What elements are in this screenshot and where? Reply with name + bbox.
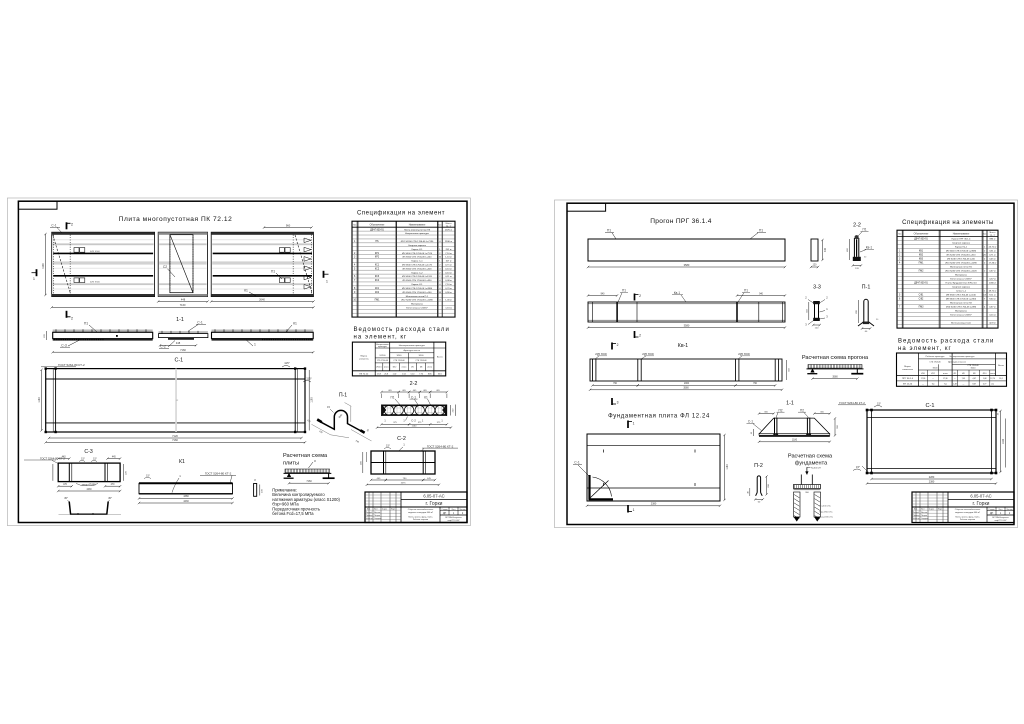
svg-text:СТБ 1704-06: СТБ 1704-06 bbox=[929, 361, 940, 363]
svg-text:ПМ1: ПМ1 bbox=[375, 300, 381, 302]
svg-text:Ø8 S500 СТБ 1704-06 L=2300: Ø8 S500 СТБ 1704-06 L=2300 bbox=[946, 299, 977, 301]
svg-text:Ø10 S240 СТБ 1704-06 L=980: Ø10 S240 СТБ 1704-06 L=980 bbox=[946, 307, 977, 309]
svg-text:1180: 1180 bbox=[1002, 438, 1005, 444]
svg-text:Ø6: Ø6 bbox=[420, 367, 423, 369]
svg-text:Стадия: Стадия bbox=[988, 509, 994, 511]
svg-text:7,10 кг: 7,10 кг bbox=[445, 253, 452, 255]
svg-text:8,67: 8,67 bbox=[972, 384, 976, 386]
svg-text:0,67 м: 0,67 м bbox=[989, 279, 996, 281]
svg-text:2: 2 bbox=[617, 343, 619, 347]
svg-text:бетона Fcd=17,5 МПа: бетона Fcd=17,5 МПа bbox=[272, 511, 314, 516]
svg-text:252 кг: 252 кг bbox=[446, 249, 452, 251]
svg-text:Ø5: Ø5 bbox=[954, 373, 957, 375]
svg-text:0,70 кг: 0,70 кг bbox=[445, 288, 452, 290]
svg-text:0,10 кг: 0,10 кг bbox=[445, 272, 452, 274]
svg-text:К1: К1 bbox=[293, 321, 297, 325]
svg-text:1.02: 1.02 bbox=[393, 373, 397, 375]
svg-text:П2: П2 bbox=[800, 408, 804, 412]
svg-text:2000: 2000 bbox=[684, 383, 690, 385]
svg-text:Провер.: Провер. bbox=[913, 515, 920, 517]
svg-text:Иванов: Иванов bbox=[374, 512, 380, 514]
svg-text:ГОСТ 5264-80 КТ-2: ГОСТ 5264-80 КТ-2 bbox=[58, 363, 85, 367]
svg-text:С-3: С-3 bbox=[61, 343, 67, 347]
svg-text:Расчетная схема: Расчетная схема bbox=[788, 454, 833, 460]
svg-text:Марка: Марка bbox=[904, 366, 911, 368]
svg-text:ПS: ПS bbox=[375, 241, 379, 243]
svg-text:ед., кг: ед., кг bbox=[446, 226, 452, 228]
svg-text:С-1: С-1 bbox=[51, 224, 56, 228]
svg-text:1: 1 bbox=[633, 508, 635, 512]
svg-text:2: 2 bbox=[639, 294, 641, 298]
svg-text:Кв-1: Кв-1 bbox=[678, 343, 689, 349]
svg-text:Кв-1: Кв-1 bbox=[674, 291, 681, 295]
svg-text:Сетка С-1: Сетка С-1 bbox=[956, 291, 967, 293]
svg-text:КС4: КС4 bbox=[375, 280, 380, 282]
svg-text:Ø12: Ø12 bbox=[393, 367, 397, 369]
svg-text:Ø5 S500 СТБ 1704-06 L=7120: Ø5 S500 СТБ 1704-06 L=7120 bbox=[402, 253, 433, 255]
svg-text:3580: 3580 bbox=[684, 263, 690, 267]
svg-text:17,36: 17,36 bbox=[921, 378, 926, 380]
svg-text:18,71 кг: 18,71 кг bbox=[989, 291, 997, 293]
svg-text:Сварные каркасы: Сварные каркасы bbox=[952, 287, 971, 289]
svg-text:960: 960 bbox=[286, 223, 291, 227]
svg-text:П-1: П-1 bbox=[862, 285, 871, 291]
svg-text:П1: П1 bbox=[622, 289, 626, 293]
svg-text:Разраб.: Разраб. bbox=[913, 512, 920, 514]
svg-text:на элемент, кг: на элемент, кг bbox=[898, 346, 952, 352]
svg-text:Ø5 S500 СТБ 1704-06 L=1175: Ø5 S500 СТБ 1704-06 L=1175 bbox=[402, 265, 433, 267]
svg-text:Марка: Марка bbox=[361, 356, 368, 358]
svg-text:ДБЧГ 830-91: ДБЧГ 830-91 bbox=[914, 239, 928, 241]
svg-text:Сварные каркасы: Сварные каркасы bbox=[408, 245, 427, 247]
svg-text:2-2: 2-2 bbox=[410, 381, 418, 387]
svg-text:К1: К1 bbox=[424, 395, 428, 399]
svg-text:35.6: 35.6 bbox=[438, 373, 442, 375]
svg-text:2530 кг: 2530 кг bbox=[445, 241, 452, 243]
svg-text:2: 2 bbox=[71, 316, 73, 320]
svg-text:ФЛ 12.24: ФЛ 12.24 bbox=[903, 383, 913, 386]
svg-text:Листов: Листов bbox=[1006, 509, 1012, 511]
svg-text:итого: итого bbox=[943, 373, 948, 375]
svg-text:Ведомость расхода стали: Ведомость расхода стали bbox=[898, 339, 994, 345]
svg-text:45°: 45° bbox=[108, 497, 112, 500]
svg-text:3580: 3580 bbox=[684, 323, 690, 327]
svg-text:Плита многопустотная ПК: Плита многопустотная ПК bbox=[404, 229, 431, 231]
svg-text:0,67 кг: 0,67 кг bbox=[989, 307, 996, 309]
svg-text:Н.контр.: Н.контр. bbox=[366, 518, 373, 520]
svg-text:Фундаментная плита ФЛ 12.24: Фундаментная плита ФЛ 12.24 bbox=[608, 414, 710, 420]
svg-text:15°: 15° bbox=[877, 402, 881, 406]
svg-text:Лист: Лист bbox=[451, 509, 455, 511]
svg-text:2: 2 bbox=[71, 222, 73, 226]
svg-text:СТБ 1704-06: СТБ 1704-06 bbox=[393, 360, 404, 362]
svg-text:ПК 72.12: ПК 72.12 bbox=[359, 373, 369, 375]
svg-text:2-2: 2-2 bbox=[853, 223, 861, 229]
svg-text:Ø12.5: Ø12.5 bbox=[376, 367, 381, 369]
svg-text:—: — bbox=[954, 378, 956, 380]
svg-text:Наименование: Наименование bbox=[953, 233, 970, 236]
svg-text:24,71 кг: 24,71 кг bbox=[989, 247, 997, 249]
svg-text:—: — bbox=[963, 384, 965, 386]
svg-text:Монтажные петли П1: Монтажные петли П1 bbox=[950, 267, 972, 269]
svg-text:S240: S240 bbox=[971, 367, 977, 369]
svg-text:Ø5 S500 СТБ 1704-06 L=4380: Ø5 S500 СТБ 1704-06 L=4380 bbox=[402, 288, 433, 290]
svg-text:—: — bbox=[922, 384, 924, 386]
svg-text:Кол: Кол bbox=[983, 234, 986, 236]
svg-text:Стадия: Стадия bbox=[441, 509, 447, 511]
svg-text:Ø8 S500 СТБ 1704-06 L=1110: Ø8 S500 СТБ 1704-06 L=1110 bbox=[946, 295, 977, 297]
svg-text:Бетон класса С30/37: Бетон класса С30/37 bbox=[406, 308, 428, 310]
svg-text:4430: 4430 bbox=[86, 489, 92, 491]
svg-text:Подп.: Подп. bbox=[391, 509, 396, 511]
svg-text:15°: 15° bbox=[146, 475, 150, 478]
svg-text:15°: 15° bbox=[856, 465, 860, 469]
svg-text:К1: К1 bbox=[179, 459, 185, 465]
svg-text:2280: 2280 bbox=[929, 476, 935, 479]
svg-text:Лист: Лист bbox=[374, 509, 378, 511]
svg-text:Ø5 S240 СТБ 1704-06 L=310: Ø5 S240 СТБ 1704-06 L=310 bbox=[947, 255, 977, 257]
svg-text:ГОСТ 5264-80 КТ-2: ГОСТ 5264-80 КТ-2 bbox=[839, 401, 865, 405]
svg-text:448: 448 bbox=[181, 297, 186, 301]
svg-text:448: 448 bbox=[176, 341, 181, 345]
svg-text:1160: 1160 bbox=[412, 425, 417, 427]
svg-text:ГОСТ 5264-80 КТ-2: ГОСТ 5264-80 КТ-2 bbox=[427, 444, 454, 448]
svg-text:на элемент, кг: на элемент, кг bbox=[354, 335, 408, 341]
svg-text:Всего: Всего bbox=[437, 357, 444, 359]
svg-text:Изм: Изм bbox=[367, 509, 370, 511]
svg-text:107 кг: 107 кг bbox=[446, 261, 452, 263]
svg-text:С-1: С-1 bbox=[197, 321, 203, 325]
svg-text:Н.контр.: Н.контр. bbox=[913, 518, 920, 520]
svg-text:2380: 2380 bbox=[929, 480, 935, 483]
svg-text:элементов: элементов bbox=[902, 369, 914, 371]
svg-text:фундамента: фундамента bbox=[795, 461, 828, 467]
svg-text:Так: Так bbox=[932, 384, 935, 386]
svg-text:итого: итого bbox=[990, 373, 995, 375]
svg-text:К1: К1 bbox=[244, 289, 248, 293]
svg-text:Ø5 S500 СТБ 1704-06 L=160: Ø5 S500 СТБ 1704-06 L=160 bbox=[403, 292, 433, 294]
svg-text:ПРГ 36.1.4: ПРГ 36.1.4 bbox=[902, 378, 914, 380]
svg-text:БГСХА-Факультет: БГСХА-Факультет bbox=[445, 516, 461, 519]
svg-text:7.70: 7.70 bbox=[419, 373, 423, 375]
svg-text:Подп.: Подп. bbox=[938, 509, 943, 511]
svg-text:Ø5 S240 СТБ 1704-06 L=3580: Ø5 S240 СТБ 1704-06 L=3580 bbox=[946, 251, 977, 253]
svg-text:изделия площадки 600 м²: изделия площадки 600 м² bbox=[408, 511, 433, 514]
svg-text:КВ3: КВ3 bbox=[919, 259, 924, 261]
svg-text:Ø6: Ø6 bbox=[962, 373, 965, 375]
svg-text:П-1: П-1 bbox=[339, 393, 347, 399]
svg-text:С-1: С-1 bbox=[174, 358, 183, 364]
svg-text:Спецификация на элемент: Спецификация на элемент bbox=[357, 211, 445, 217]
svg-text:зазор 4ТУВ2: зазор 4ТУВ2 bbox=[81, 483, 96, 486]
svg-text:Rф=1900 кПа: Rф=1900 кПа bbox=[819, 511, 833, 514]
svg-text:Каркас К-1: Каркас К-1 bbox=[412, 284, 424, 286]
svg-text:4430: 4430 bbox=[183, 500, 189, 503]
svg-text:Ø10 S240 СТБ 1704-06 L=1090: Ø10 S240 СТБ 1704-06 L=1090 bbox=[945, 263, 977, 265]
svg-text:S1200: S1200 bbox=[379, 355, 386, 357]
svg-text:Рабочая арматура: Рабочая арматура bbox=[926, 356, 946, 358]
svg-text:итого: итого bbox=[402, 367, 407, 369]
svg-text:885 кг: 885 кг bbox=[989, 239, 995, 241]
svg-text:ДП: ДП bbox=[990, 512, 994, 515]
svg-text:—: — bbox=[932, 378, 934, 380]
svg-text:ГОСТ 5264-80 КТ-2: ГОСТ 5264-80 КТ-2 bbox=[205, 472, 232, 476]
svg-text:3: 3 bbox=[617, 401, 619, 405]
svg-text:4Ø5 S500: 4Ø5 S500 bbox=[90, 282, 101, 284]
svg-text:П-2: П-2 bbox=[754, 463, 763, 469]
svg-text:17,36: 17,36 bbox=[943, 378, 948, 380]
svg-text:Провер.: Провер. bbox=[366, 515, 373, 517]
svg-text:1,16 м: 1,16 м bbox=[445, 308, 452, 310]
svg-text:115°: 115° bbox=[284, 361, 290, 365]
svg-text:Материалы: Материалы bbox=[411, 304, 423, 306]
svg-text:25.8: 25.8 bbox=[377, 373, 381, 375]
svg-text:Каркас Кв-1: Каркас Кв-1 bbox=[955, 247, 968, 249]
svg-text:1180: 1180 bbox=[792, 439, 798, 442]
svg-text:ПМ1: ПМ1 bbox=[919, 263, 925, 265]
svg-text:2640: 2640 bbox=[259, 297, 265, 301]
svg-text:1: 1 bbox=[326, 280, 328, 284]
svg-text:Кв-1: Кв-1 bbox=[866, 246, 873, 250]
svg-text:П2: П2 bbox=[778, 408, 782, 412]
svg-text:1,10 кг: 1,10 кг bbox=[445, 257, 452, 259]
svg-text:9,11 кг: 9,11 кг bbox=[989, 295, 996, 297]
svg-text:S500: S500 bbox=[419, 355, 425, 357]
svg-text:Плита многопустотная ПК 72.: Плита многопустотная ПК 72.12 bbox=[119, 216, 233, 223]
svg-text:6.05-07-АС: 6.05-07-АС bbox=[423, 493, 444, 498]
svg-text:12,74: 12,74 bbox=[990, 378, 995, 380]
svg-text:Обозначение: Обозначение bbox=[914, 233, 929, 236]
svg-text:Материалы: Материалы bbox=[955, 311, 967, 313]
svg-text:7160: 7160 bbox=[172, 438, 178, 442]
svg-text:0,71 кг: 0,71 кг bbox=[445, 265, 452, 267]
svg-text:0,67 кг: 0,67 кг bbox=[989, 271, 996, 273]
svg-text:Изм: Изм bbox=[914, 509, 917, 511]
svg-text:Расчетная схема прогона: Расчетная схема прогона bbox=[802, 355, 869, 361]
svg-text:Обозначение: Обозначение bbox=[370, 224, 385, 227]
svg-text:итого: итого bbox=[427, 367, 432, 369]
svg-text:4380: 4380 bbox=[183, 495, 189, 498]
svg-text:Ø5 S500 СТБ 1704-06 L=240: Ø5 S500 СТБ 1704-06 L=240 bbox=[403, 257, 433, 259]
svg-text:S240: S240 bbox=[397, 355, 403, 357]
svg-text:Ø10 S240 СТБ 1704-06 L=1020: Ø10 S240 СТБ 1704-06 L=1020 bbox=[945, 271, 977, 273]
svg-text:П1: П1 bbox=[271, 269, 275, 273]
svg-text:Петров: Петров bbox=[374, 515, 380, 517]
svg-text:Наименование: Наименование bbox=[409, 224, 426, 227]
svg-text:Ø10: Ø10 bbox=[983, 373, 987, 375]
svg-text:КС3: КС3 bbox=[375, 276, 380, 278]
svg-text:ДБЧГ 830-91: ДБЧГ 830-91 bbox=[370, 229, 384, 231]
svg-text:7160: 7160 bbox=[180, 348, 186, 352]
svg-text:1190: 1190 bbox=[41, 263, 45, 269]
svg-text:1675: 1675 bbox=[401, 483, 407, 485]
svg-text:0,41 м: 0,41 м bbox=[989, 315, 996, 317]
svg-text:Всего расход стали: Всего расход стали bbox=[951, 323, 972, 325]
svg-text:каф.ПГС-407: каф.ПГС-407 bbox=[447, 519, 460, 522]
svg-text:1: 1 bbox=[254, 342, 256, 346]
svg-text:30,1: 30,1 bbox=[999, 378, 1003, 380]
svg-text:3,51 кг: 3,51 кг bbox=[989, 251, 996, 253]
svg-text:Спецификация на элементы: Спецификация на элементы bbox=[902, 220, 994, 226]
svg-text:1: 1 bbox=[633, 422, 635, 426]
svg-text:Разраб.: Разраб. bbox=[366, 512, 373, 514]
svg-text:БГСХА-Факультет: БГСХА-Факультет bbox=[992, 516, 1008, 519]
svg-text:4Ø5 S500: 4Ø5 S500 bbox=[90, 251, 101, 253]
svg-text:S500: S500 bbox=[933, 367, 939, 369]
svg-text:Петров: Петров bbox=[921, 515, 927, 517]
svg-text:0,45 кг: 0,45 кг bbox=[989, 259, 996, 261]
svg-text:С-1: С-1 bbox=[574, 461, 580, 465]
svg-text:1,00 кг: 1,00 кг bbox=[445, 300, 452, 302]
svg-text:Арматура класса: Арматура класса bbox=[404, 349, 421, 352]
svg-text:Кол: Кол bbox=[438, 225, 441, 227]
svg-text:6.05-07-АС: 6.05-07-АС bbox=[970, 493, 991, 498]
svg-text:Ø8: Ø8 bbox=[973, 373, 976, 375]
svg-text:СФ2: СФ2 bbox=[919, 298, 924, 301]
svg-text:С-1: С-1 bbox=[411, 395, 416, 399]
svg-text:СТБ 1704-06: СТБ 1704-06 bbox=[415, 360, 426, 362]
svg-text:1160: 1160 bbox=[38, 397, 41, 403]
svg-text:КР2: КР2 bbox=[375, 257, 380, 259]
svg-text:1-1: 1-1 bbox=[176, 317, 184, 323]
svg-text:Ø5: Ø5 bbox=[411, 367, 414, 369]
svg-text:1,08: 1,08 bbox=[983, 378, 987, 380]
svg-text:2370 кг: 2370 кг bbox=[445, 229, 452, 231]
svg-text:1-1: 1-1 bbox=[786, 401, 794, 407]
svg-text:КВ2: КВ2 bbox=[919, 255, 924, 257]
svg-text:2Ø5 S500: 2Ø5 S500 bbox=[738, 352, 750, 356]
svg-text:0,71 кг: 0,71 кг bbox=[989, 255, 996, 257]
svg-text:Ненапрягаемая арматура: Ненапрягаемая арматура bbox=[950, 356, 976, 358]
svg-text:Бетон класса С30/37: Бетон класса С30/37 bbox=[950, 315, 972, 317]
svg-text:7,05: 7,05 bbox=[962, 378, 966, 380]
svg-text:9,60 кг: 9,60 кг bbox=[989, 299, 996, 301]
svg-text:КР1: КР1 bbox=[375, 253, 380, 255]
svg-text:Лист: Лист bbox=[998, 509, 1002, 511]
svg-text:1.02: 1.02 bbox=[402, 373, 406, 375]
svg-text:1190: 1190 bbox=[311, 397, 314, 403]
svg-text:Лист: Лист bbox=[921, 509, 925, 511]
svg-text:С-1: С-1 bbox=[748, 420, 753, 424]
svg-text:Напрягаемая арматура: Напрягаемая арматура bbox=[405, 233, 429, 235]
svg-text:42,8 кг: 42,8 кг bbox=[989, 323, 996, 325]
svg-text:0,11 кг: 0,11 кг bbox=[445, 276, 452, 278]
svg-text:П1: П1 bbox=[84, 321, 88, 325]
svg-text:0,10 кг: 0,10 кг bbox=[445, 268, 452, 270]
svg-text:Прогон ПРГ 36.1.4: Прогон ПРГ 36.1.4 bbox=[952, 239, 971, 241]
svg-text:2: 2 bbox=[639, 334, 641, 338]
svg-text:Ø12: Ø12 bbox=[931, 373, 935, 375]
svg-text:элемента: элемента bbox=[359, 359, 369, 361]
svg-text:5.10: 5.10 bbox=[411, 373, 415, 375]
svg-text:Ø5 S500 СТБ 1704-06 L=1120: Ø5 S500 СТБ 1704-06 L=1120 bbox=[402, 276, 433, 278]
svg-text:СТБ 1704-06: СТБ 1704-06 bbox=[967, 365, 978, 367]
svg-text:СТБ 1704-06: СТБ 1704-06 bbox=[377, 360, 388, 362]
svg-text:Каркас С-2: Каркас С-2 bbox=[411, 272, 423, 274]
svg-text:Рабочие чертежи: Рабочие чертежи bbox=[413, 519, 428, 521]
svg-text:С-2: С-2 bbox=[397, 436, 406, 442]
svg-text:Плита Фундаментная ФЛ12.24: Плита Фундаментная ФЛ12.24 bbox=[946, 282, 978, 285]
svg-text:1,48: 1,48 bbox=[953, 384, 957, 386]
svg-text:С-2: С-2 bbox=[411, 419, 416, 423]
svg-text:плиты: плиты bbox=[283, 461, 299, 467]
svg-text:Материалы: Материалы bbox=[955, 275, 967, 277]
svg-text:ед., кг: ед., кг bbox=[990, 235, 996, 237]
svg-text:Каркас К-1: Каркас К-1 bbox=[412, 249, 424, 251]
svg-text:Прогон ПРГ 36.1.4: Прогон ПРГ 36.1.4 bbox=[650, 218, 711, 225]
svg-text:П1: П1 bbox=[759, 229, 763, 233]
svg-text:Иванов: Иванов bbox=[921, 512, 927, 514]
svg-text:2Ø5 S500: 2Ø5 S500 bbox=[595, 352, 607, 356]
svg-text:15°: 15° bbox=[386, 444, 390, 448]
svg-text:г. Горки: г. Горки bbox=[426, 501, 443, 507]
svg-text:17,36 кг: 17,36 кг bbox=[989, 263, 997, 265]
svg-text:Ø12 S240 СТБ 1704-06 L=1080: Ø12 S240 СТБ 1704-06 L=1080 bbox=[401, 300, 433, 302]
svg-text:Сварные каркасы: Сварные каркасы bbox=[952, 243, 971, 245]
svg-text:ГОСТ 5264-80 КТ-2: ГОСТ 5264-80 КТ-2 bbox=[40, 456, 65, 460]
svg-text:Так: Так bbox=[944, 384, 947, 386]
svg-text:Сидоров: Сидоров bbox=[921, 518, 928, 520]
svg-text:Рабочие чертежи: Рабочие чертежи bbox=[960, 519, 975, 521]
svg-text:Монтажные петли П-1: Монтажные петли П-1 bbox=[406, 296, 429, 298]
svg-text:Расчетная схема: Расчетная схема bbox=[283, 453, 328, 459]
svg-text:7120: 7120 bbox=[172, 434, 178, 438]
svg-text:7,10 кг: 7,10 кг bbox=[445, 284, 452, 286]
svg-text:25.8: 25.8 bbox=[384, 373, 388, 375]
svg-text:Каркас С-1: Каркас С-1 bbox=[411, 261, 423, 263]
svg-text:КС1: КС1 bbox=[375, 265, 380, 267]
svg-text:ПМ3: ПМ3 bbox=[919, 307, 925, 309]
svg-text:3580: 3580 bbox=[832, 376, 838, 379]
svg-text:0,08 кг: 0,08 кг bbox=[445, 280, 452, 282]
svg-text:Бетон класса С30/37: Бетон класса С30/37 bbox=[950, 279, 972, 281]
svg-text:П1: П1 bbox=[862, 228, 866, 232]
svg-text:1180: 1180 bbox=[726, 464, 729, 470]
svg-text:2Ø5 S500: 2Ø5 S500 bbox=[642, 352, 654, 356]
svg-text:Всего: Всего bbox=[998, 365, 1005, 367]
svg-text:итого: итого bbox=[384, 367, 389, 369]
svg-text:Ø12 S1200 СТБ 1706-06 L=7130: Ø12 S1200 СТБ 1706-06 L=7130 bbox=[401, 241, 434, 243]
svg-text:1: 1 bbox=[33, 277, 35, 281]
svg-text:СФ1: СФ1 bbox=[919, 294, 924, 297]
svg-text:Ø5 S500 СТБ 1704-06 L=350: Ø5 S500 СТБ 1704-06 L=350 bbox=[403, 280, 433, 282]
svg-text:3580: 3580 bbox=[683, 387, 689, 390]
svg-text:П1: П1 bbox=[390, 395, 394, 399]
svg-text:С-3: С-3 bbox=[84, 449, 92, 455]
svg-text:Поз: Поз bbox=[898, 234, 901, 236]
svg-text:3-3: 3-3 bbox=[813, 285, 821, 291]
svg-text:7160: 7160 bbox=[180, 303, 186, 307]
svg-text:40: 40 bbox=[747, 491, 749, 493]
svg-text:ПМ2: ПМ2 bbox=[919, 271, 925, 273]
svg-text:Ø5 S500 СТБ 1704-06 L=400: Ø5 S500 СТБ 1704-06 L=400 bbox=[403, 268, 433, 270]
svg-text:ДП: ДП bbox=[443, 512, 447, 515]
svg-text:Rср=2030 кПа: Rср=2030 кПа bbox=[819, 517, 834, 519]
svg-text:Сидоров: Сидоров bbox=[374, 518, 381, 520]
svg-text:г. Горки: г. Горки bbox=[973, 501, 990, 507]
svg-text:4,67: 4,67 bbox=[972, 378, 976, 380]
svg-text:Ведомость расхода стали: Ведомость расхода стали bbox=[354, 327, 450, 333]
svg-text:арматура: арматура bbox=[378, 346, 388, 348]
svg-text:Ø10: Ø10 bbox=[921, 373, 925, 375]
svg-text:Ø5 S240 СТБ 1704-06 L=60: Ø5 S240 СТБ 1704-06 L=60 bbox=[947, 259, 975, 261]
svg-text:2380: 2380 bbox=[651, 503, 657, 506]
svg-text:Монтажные петли П2: Монтажные петли П2 bbox=[950, 303, 972, 305]
svg-text:П1: П1 bbox=[744, 289, 748, 293]
svg-text:С-1: С-1 bbox=[925, 403, 934, 409]
svg-text:КВ1: КВ1 bbox=[919, 251, 924, 253]
svg-text:7160: 7160 bbox=[306, 480, 312, 483]
